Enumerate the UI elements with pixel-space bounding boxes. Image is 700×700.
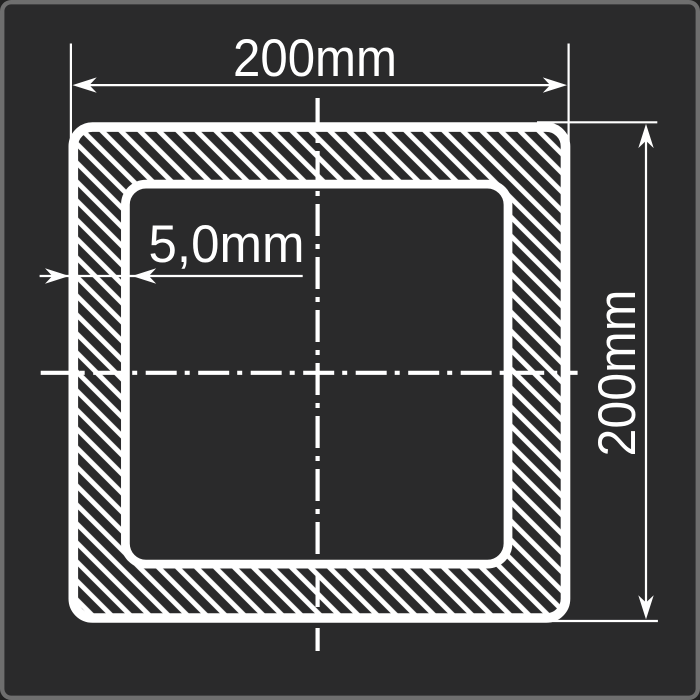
svg-text:200mm: 200mm xyxy=(233,29,397,88)
svg-text:200mm: 200mm xyxy=(588,290,647,457)
svg-text:5,0mm: 5,0mm xyxy=(149,215,305,274)
